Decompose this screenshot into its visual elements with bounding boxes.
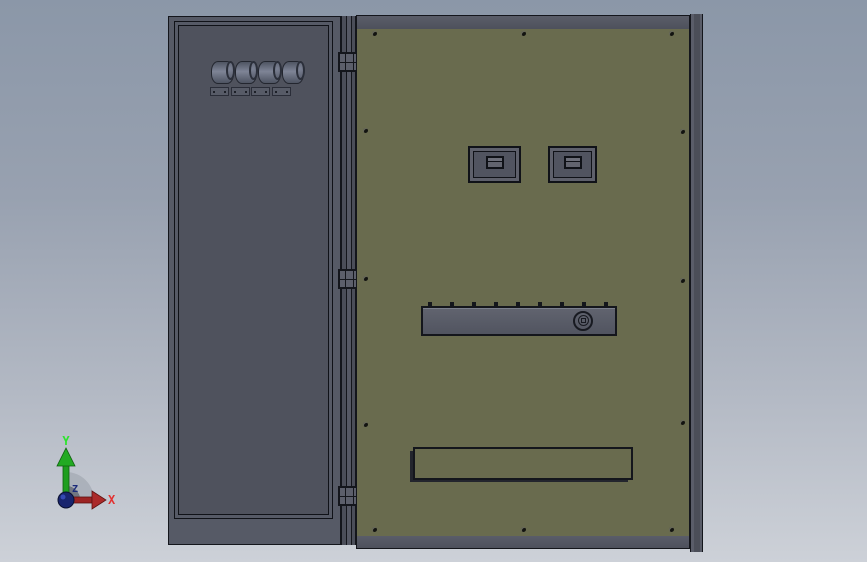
orientation-triad[interactable]: Z Y X [46,436,118,520]
cylinder-end-ring [273,61,282,80]
screw-icon [363,422,368,427]
terminal-cylinders[interactable] [211,61,304,83]
plate-screw-dot [245,91,247,93]
cylinder[interactable] [235,61,258,84]
lock-knob-ring [578,315,589,326]
cylinder-end-ring [249,61,258,80]
y-axis-label: Y [62,436,70,448]
breaker-strip[interactable] [421,306,617,336]
plate-screw-dot [213,91,215,93]
plate-screw-dot [265,91,267,93]
plate-screw-dot [286,91,288,93]
plate-screw-dot [224,91,226,93]
screw-icon [680,420,685,425]
latch-band [566,158,580,162]
meter-window[interactable] [468,146,521,183]
cabinet-side-wall[interactable] [690,14,703,552]
plate-screw-dot [234,91,236,93]
screw-icon [363,128,368,133]
screw-icon [372,31,377,36]
plate-screw-dot [254,91,256,93]
screw-icon [680,129,685,134]
cylinder[interactable] [282,61,305,84]
mounting-plate[interactable] [210,87,229,96]
meter-window-glass [553,151,592,178]
cad-viewport: { "viewport": { "background_top": "#8b97… [0,0,867,562]
lock-knob-keyhole [581,318,586,323]
door-face-panel[interactable] [178,25,329,515]
mounting-plate[interactable] [231,87,250,96]
screw-icon [669,31,674,36]
x-axis-arrowhead[interactable] [92,491,106,509]
cabinet-frame-bottom[interactable] [356,535,690,549]
window-latch[interactable] [564,156,582,169]
z-sphere-highlight [61,495,66,500]
cylinder[interactable] [258,61,281,84]
cabinet-frame-top[interactable] [356,15,690,30]
screw-icon [363,276,368,281]
latch-band [488,158,502,162]
screw-icon [669,527,674,532]
lock-knob[interactable] [573,311,593,331]
meter-window-glass [473,151,516,178]
screw-icon [680,278,685,283]
screw-icon [521,527,526,532]
window-latch[interactable] [486,156,504,169]
plate-screw-dot [275,91,277,93]
mounting-plate[interactable] [251,87,270,96]
screw-icon [521,31,526,36]
cylinder-end-ring [226,61,235,80]
cylinder-end-ring [296,61,305,80]
x-axis-label: X [108,493,116,507]
z-axis-sphere[interactable] [58,492,74,508]
cylinder[interactable] [211,61,234,84]
vent-grille[interactable] [413,447,633,480]
screw-icon [372,527,377,532]
z-axis-label: Z [72,484,78,495]
mounting-plate[interactable] [272,87,291,96]
meter-window[interactable] [548,146,597,183]
y-axis-arrowhead[interactable] [57,448,75,466]
